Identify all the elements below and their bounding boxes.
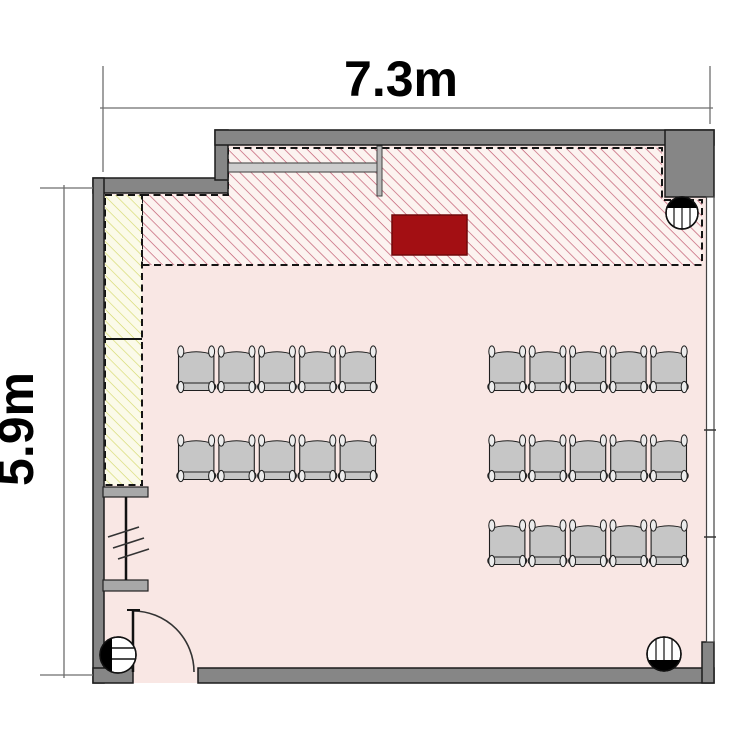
chair-arm-loop bbox=[370, 346, 376, 357]
chair bbox=[298, 435, 337, 482]
chair bbox=[298, 346, 337, 393]
chair-arm-loop bbox=[299, 346, 305, 357]
chair-arm-loop bbox=[681, 381, 687, 392]
chair-arm-loop bbox=[610, 435, 616, 446]
chair-seat bbox=[530, 441, 565, 473]
chair-arm-loop bbox=[218, 435, 224, 446]
chair bbox=[609, 435, 648, 482]
chair-seat bbox=[300, 352, 335, 384]
chair-arm-loop bbox=[520, 346, 526, 357]
chair bbox=[488, 435, 527, 482]
chair-seat bbox=[259, 352, 294, 384]
chair-arm-loop bbox=[610, 346, 616, 357]
floor-plan: 7.3m 5.9m bbox=[0, 0, 750, 750]
chair bbox=[528, 435, 567, 482]
chair-seat bbox=[651, 526, 686, 558]
chair-arm-loop bbox=[249, 470, 255, 481]
chair-arm-loop bbox=[570, 520, 576, 531]
whiteboard bbox=[227, 163, 380, 172]
chair-arm-loop bbox=[259, 470, 265, 481]
chair-arm-loop bbox=[610, 555, 616, 566]
chair-arm-loop bbox=[610, 470, 616, 481]
chair-seat bbox=[179, 441, 214, 473]
teacher-desk bbox=[392, 215, 467, 255]
chair-arm-loop bbox=[610, 520, 616, 531]
chair-arm-loop bbox=[249, 435, 255, 446]
chair-arm-loop bbox=[570, 470, 576, 481]
chair-arm-loop bbox=[289, 346, 295, 357]
chair-arm-loop bbox=[600, 435, 606, 446]
chair bbox=[569, 346, 608, 393]
chair-arm-loop bbox=[520, 470, 526, 481]
chair-arm-loop bbox=[529, 470, 535, 481]
chair-arm-loop bbox=[641, 470, 647, 481]
chair bbox=[569, 435, 608, 482]
chair bbox=[258, 435, 297, 482]
chair-arm-loop bbox=[529, 346, 535, 357]
chair-arm-loop bbox=[178, 346, 184, 357]
chair-seat bbox=[490, 352, 525, 384]
partition-cap-bottom bbox=[103, 580, 148, 591]
chair-arm-loop bbox=[370, 435, 376, 446]
chair-arm-loop bbox=[560, 555, 566, 566]
floor-plan-svg: 7.3m 5.9m bbox=[0, 0, 750, 750]
wall-left bbox=[93, 178, 104, 683]
chair-seat bbox=[179, 352, 214, 384]
wall-bottom bbox=[198, 668, 714, 683]
chair-arm-loop bbox=[560, 520, 566, 531]
chair-seat bbox=[530, 352, 565, 384]
chair-arm-loop bbox=[209, 381, 215, 392]
chair-arm-loop bbox=[681, 555, 687, 566]
chair-arm-loop bbox=[650, 470, 656, 481]
chair-arm-loop bbox=[600, 470, 606, 481]
chair-arm-loop bbox=[600, 346, 606, 357]
chair-arm-loop bbox=[520, 381, 526, 392]
column-top-right bbox=[666, 197, 698, 229]
chair-arm-loop bbox=[259, 381, 265, 392]
chair-arm-loop bbox=[520, 435, 526, 446]
chair-arm-loop bbox=[641, 346, 647, 357]
chair-arm-loop bbox=[370, 470, 376, 481]
chair-seat bbox=[651, 441, 686, 473]
dimension-left bbox=[40, 185, 93, 678]
chair-arm-loop bbox=[681, 520, 687, 531]
chair bbox=[609, 520, 648, 567]
chair-arm-loop bbox=[600, 555, 606, 566]
chair-arm-loop bbox=[600, 520, 606, 531]
board-end-partition bbox=[377, 146, 382, 196]
chair-arm-loop bbox=[641, 520, 647, 531]
chair-seat bbox=[490, 441, 525, 473]
chair-arm-loop bbox=[330, 346, 336, 357]
chair-arm-loop bbox=[330, 381, 336, 392]
chair bbox=[569, 520, 608, 567]
chair-arm-loop bbox=[178, 470, 184, 481]
chair-arm-loop bbox=[489, 470, 495, 481]
wall-block-top-right bbox=[665, 130, 714, 197]
chair-arm-loop bbox=[218, 346, 224, 357]
chair-arm-loop bbox=[339, 435, 345, 446]
chair-seat bbox=[300, 441, 335, 473]
chair-seat bbox=[611, 441, 646, 473]
chair-arm-loop bbox=[209, 346, 215, 357]
chair-seat bbox=[490, 526, 525, 558]
chair-arm-loop bbox=[570, 555, 576, 566]
wall-top bbox=[215, 130, 714, 145]
chair bbox=[488, 346, 527, 393]
chair-arm-loop bbox=[489, 435, 495, 446]
chair bbox=[649, 520, 688, 567]
chair-arm-loop bbox=[560, 346, 566, 357]
chair-arm-loop bbox=[339, 346, 345, 357]
chair-arm-loop bbox=[641, 435, 647, 446]
chair-arm-loop bbox=[650, 346, 656, 357]
chair-arm-loop bbox=[520, 555, 526, 566]
chair-arm-loop bbox=[289, 435, 295, 446]
chair-arm-loop bbox=[289, 381, 295, 392]
width-dimension-label: 7.3m bbox=[344, 51, 458, 107]
chair-seat bbox=[570, 526, 605, 558]
chair-seat bbox=[340, 352, 375, 384]
chair-arm-loop bbox=[610, 381, 616, 392]
chair-arm-loop bbox=[681, 346, 687, 357]
chair-arm-loop bbox=[570, 381, 576, 392]
chair-arm-loop bbox=[299, 470, 305, 481]
chair-arm-loop bbox=[650, 381, 656, 392]
chair-arm-loop bbox=[178, 381, 184, 392]
chair bbox=[649, 346, 688, 393]
chair bbox=[177, 346, 216, 393]
chair-arm-loop bbox=[209, 470, 215, 481]
chair-seat bbox=[570, 441, 605, 473]
chair-seat bbox=[651, 352, 686, 384]
chair-arm-loop bbox=[299, 435, 305, 446]
chair bbox=[217, 346, 256, 393]
chair-arm-loop bbox=[570, 435, 576, 446]
chair-arm-loop bbox=[520, 520, 526, 531]
chair bbox=[649, 435, 688, 482]
closet-strip bbox=[105, 195, 142, 485]
chair bbox=[609, 346, 648, 393]
chair-arm-loop bbox=[570, 346, 576, 357]
chair bbox=[528, 346, 567, 393]
chair bbox=[177, 435, 216, 482]
chair-arm-loop bbox=[529, 520, 535, 531]
chair bbox=[217, 435, 256, 482]
chair-seat bbox=[530, 526, 565, 558]
chair-arm-loop bbox=[489, 520, 495, 531]
chair-arm-loop bbox=[370, 381, 376, 392]
chair-arm-loop bbox=[209, 435, 215, 446]
chair-arm-loop bbox=[259, 346, 265, 357]
chair-arm-loop bbox=[529, 555, 535, 566]
chair-arm-loop bbox=[650, 435, 656, 446]
chair-arm-loop bbox=[650, 555, 656, 566]
chair-arm-loop bbox=[641, 381, 647, 392]
chair-arm-loop bbox=[529, 381, 535, 392]
chair bbox=[528, 520, 567, 567]
chair-arm-loop bbox=[259, 435, 265, 446]
chair-arm-loop bbox=[330, 435, 336, 446]
chair-arm-loop bbox=[330, 470, 336, 481]
wall-top-left bbox=[93, 178, 228, 193]
chair-arm-loop bbox=[650, 520, 656, 531]
chair-seat bbox=[340, 441, 375, 473]
chair-seat bbox=[259, 441, 294, 473]
chair-arm-loop bbox=[299, 381, 305, 392]
chair-arm-loop bbox=[289, 470, 295, 481]
chair-arm-loop bbox=[600, 381, 606, 392]
chair bbox=[338, 435, 377, 482]
chair-seat bbox=[611, 526, 646, 558]
chair-arm-loop bbox=[339, 470, 345, 481]
wall-block-bottom-right bbox=[702, 642, 714, 683]
chair-arm-loop bbox=[681, 470, 687, 481]
chair-arm-loop bbox=[489, 381, 495, 392]
chair-arm-loop bbox=[641, 555, 647, 566]
chair bbox=[338, 346, 377, 393]
chair-seat bbox=[219, 352, 254, 384]
chair-seat bbox=[570, 352, 605, 384]
chair-arm-loop bbox=[560, 470, 566, 481]
column-bottom-left bbox=[100, 637, 136, 673]
chair-arm-loop bbox=[529, 435, 535, 446]
chair-arm-loop bbox=[489, 346, 495, 357]
chair-arm-loop bbox=[249, 346, 255, 357]
chair bbox=[488, 520, 527, 567]
chair-arm-loop bbox=[560, 381, 566, 392]
chair-arm-loop bbox=[560, 435, 566, 446]
height-dimension-label: 5.9m bbox=[0, 372, 44, 486]
chair-arm-loop bbox=[218, 470, 224, 481]
chair-arm-loop bbox=[339, 381, 345, 392]
chair-seat bbox=[219, 441, 254, 473]
chair-arm-loop bbox=[218, 381, 224, 392]
chair bbox=[258, 346, 297, 393]
chair-arm-loop bbox=[249, 381, 255, 392]
partition-cap-top bbox=[103, 487, 148, 497]
chair-arm-loop bbox=[681, 435, 687, 446]
column-bottom-right bbox=[647, 637, 681, 671]
chair-arm-loop bbox=[489, 555, 495, 566]
chair-arm-loop bbox=[178, 435, 184, 446]
door-threshold-floor bbox=[133, 668, 198, 683]
chair-seat bbox=[611, 352, 646, 384]
